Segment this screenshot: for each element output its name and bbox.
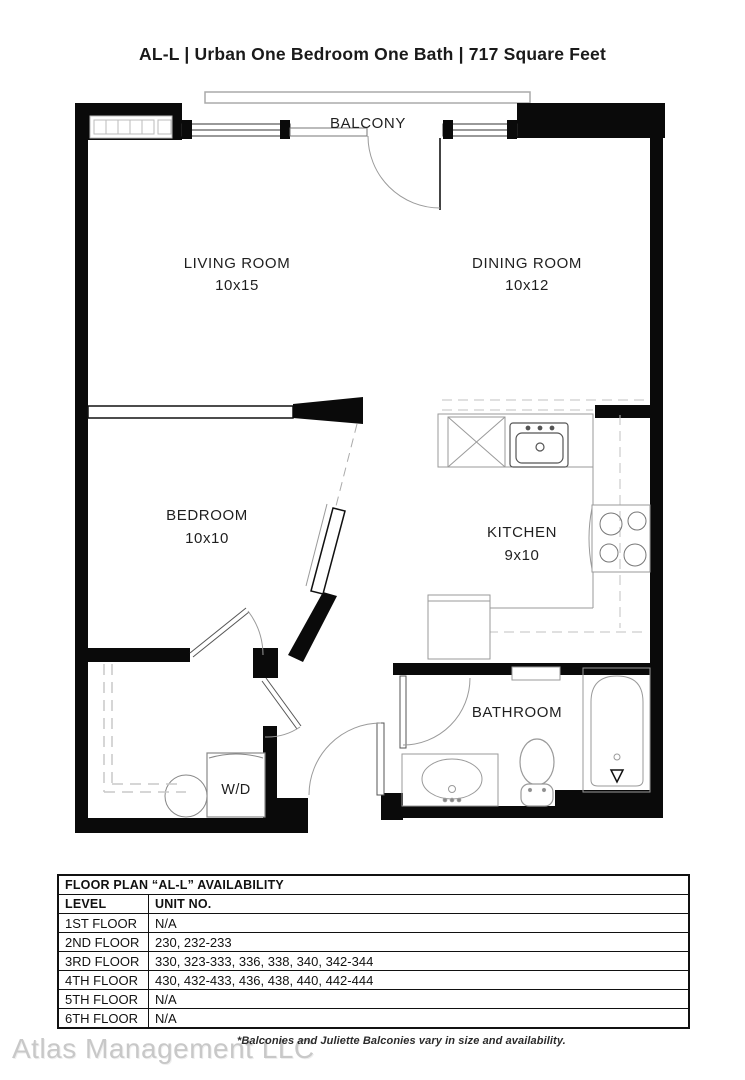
bathroom-door — [400, 676, 470, 748]
living-room-label: LIVING ROOM — [184, 255, 291, 272]
column-header-unit-no: UNIT NO. — [149, 895, 690, 914]
availability-header-row: LEVEL UNIT NO. — [58, 895, 689, 914]
table-row: 5TH FLOOR N/A — [58, 990, 689, 1009]
units-cell: N/A — [149, 1009, 690, 1029]
toilet — [520, 739, 554, 806]
bedroom-dims: 10x10 — [185, 530, 229, 547]
bathtub — [583, 668, 650, 792]
level-cell: 2ND FLOOR — [58, 933, 149, 952]
units-cell: 230, 232-233 — [149, 933, 690, 952]
kitchen-refrigerator — [428, 595, 490, 659]
level-cell: 3RD FLOOR — [58, 952, 149, 971]
bedroom-label: BEDROOM — [166, 507, 248, 524]
balcony-label: BALCONY — [330, 115, 406, 132]
balcony-disclaimer: *Balconies and Juliette Balconies vary i… — [237, 1035, 566, 1047]
availability-title: FLOOR PLAN “AL-L” AVAILABILITY — [58, 875, 689, 895]
column-header-level: LEVEL — [58, 895, 149, 914]
closet-rod — [104, 664, 186, 792]
table-row: 2ND FLOOR 230, 232-233 — [58, 933, 689, 952]
balcony-rail — [205, 92, 530, 103]
level-cell: 4TH FLOOR — [58, 971, 149, 990]
balcony-window-right — [443, 120, 517, 139]
dining-room-label: DINING ROOM — [472, 255, 582, 272]
table-row: 4TH FLOOR 430, 432-433, 436, 438, 440, 4… — [58, 971, 689, 990]
entry-door — [309, 723, 384, 795]
bedroom-sliding-door — [306, 424, 357, 594]
bedroom-door — [190, 608, 263, 657]
dining-room-dims: 10x12 — [505, 277, 549, 294]
level-cell: 6TH FLOOR — [58, 1009, 149, 1029]
bathroom-shelf — [512, 667, 560, 680]
bathroom-vanity — [402, 754, 498, 806]
units-cell: N/A — [149, 990, 690, 1009]
kitchen-dishwasher — [448, 417, 505, 467]
units-cell: 430, 432-433, 436, 438, 440, 442-444 — [149, 971, 690, 990]
availability-title-row: FLOOR PLAN “AL-L” AVAILABILITY — [58, 875, 689, 895]
table-row: 6TH FLOOR N/A — [58, 1009, 689, 1029]
table-row: 3RD FLOOR 330, 323-333, 336, 338, 340, 3… — [58, 952, 689, 971]
units-cell: N/A — [149, 914, 690, 933]
kitchen-label: KITCHEN — [487, 524, 557, 541]
units-cell: 330, 323-333, 336, 338, 340, 342-344 — [149, 952, 690, 971]
bathroom-label: BATHROOM — [472, 704, 562, 721]
table-row: 1ST FLOOR N/A — [58, 914, 689, 933]
water-heater — [165, 775, 207, 817]
level-cell: 1ST FLOOR — [58, 914, 149, 933]
kitchen-sink — [510, 423, 568, 467]
baseboard-heater — [90, 116, 172, 138]
level-cell: 5TH FLOOR — [58, 990, 149, 1009]
washer-dryer-label: W/D — [221, 782, 250, 798]
living-room-dims: 10x15 — [215, 277, 259, 294]
balcony-window-left — [182, 120, 290, 139]
availability-table: FLOOR PLAN “AL-L” AVAILABILITY LEVEL UNI… — [57, 874, 690, 1029]
kitchen-dims: 9x10 — [505, 547, 540, 564]
balcony-door — [368, 136, 440, 210]
